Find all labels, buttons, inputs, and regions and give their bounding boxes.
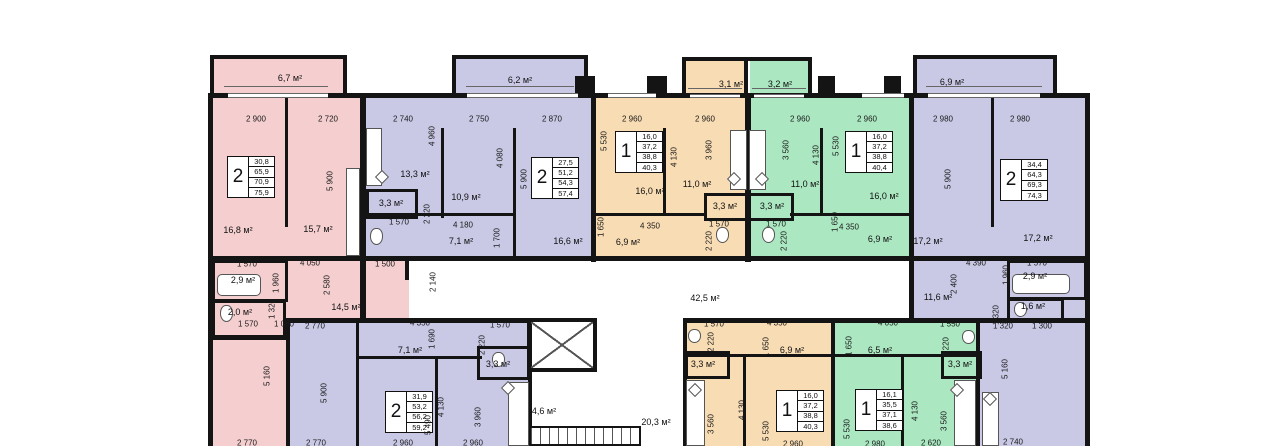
wall [682, 57, 748, 61]
dimension-label: 2 220 [942, 337, 951, 357]
apartment-area-values: 27,551,254,357,4 [553, 158, 578, 198]
dimension-label: 1 650 [845, 336, 854, 356]
room-area-label: 16,0 м² [635, 186, 664, 196]
wall [591, 97, 596, 262]
dimension-label: 5 490 [424, 415, 433, 435]
dimension-label: 5 900 [520, 169, 529, 189]
apartment-area-value: 37,1 [877, 411, 902, 421]
wall [356, 322, 359, 446]
wall [790, 213, 912, 216]
elevator-shaft [527, 318, 597, 372]
room-area-label: 16,0 м² [869, 191, 898, 201]
wall [884, 76, 901, 94]
wall [596, 213, 706, 216]
dimension-label: 3 560 [707, 414, 716, 434]
room-area-label: 6,9 м² [868, 234, 892, 244]
dimension-label: 2 220 [707, 332, 716, 352]
dimension-label: 5 530 [843, 419, 852, 439]
apartment-area-value: 75,9 [249, 188, 274, 197]
dimension-label: 1 500 [375, 260, 395, 269]
dimension-label: 1 080 [274, 320, 294, 329]
dimension-label: 5 900 [320, 383, 329, 403]
room-area-label: 7,1 м² [449, 236, 473, 246]
dimension-label: 2 960 [393, 439, 413, 446]
apartment-area-value: 69,3 [1022, 181, 1047, 191]
apartment-area-value: 16,1 [877, 390, 902, 400]
dimension-label: 2 220 [780, 231, 789, 251]
wall [513, 128, 516, 258]
dimension-label: 2 960 [463, 439, 483, 446]
dimension-label: 2 140 [429, 272, 438, 292]
dimension-label: 1 570 [237, 260, 257, 269]
apartment-area-value: 38,8 [867, 153, 892, 163]
dimension-label: 2 720 [318, 115, 338, 124]
window [228, 93, 328, 98]
wall [210, 55, 347, 59]
room-area-label: 4,6 м² [532, 406, 556, 416]
dimension-label: 2 770 [237, 439, 257, 446]
floor-plan: 230,865,970,975,9227,551,254,357,4116,03… [0, 0, 1280, 446]
apartment-area-value: 31,9 [407, 392, 432, 402]
room-area-label: 17,2 м² [913, 236, 942, 246]
dimension-label: 2 220 [478, 335, 487, 355]
dimension-label: 1 570 [766, 220, 786, 229]
room-fill [684, 60, 746, 96]
room-area-label: 6,9 м² [940, 77, 964, 87]
dimension-label: 1 570 [1027, 259, 1047, 268]
room-area-label: 17,2 м² [1023, 233, 1052, 243]
apartment-area-values: 16,037,238,840,4 [867, 132, 892, 172]
apartment-room-count: 2 [386, 392, 407, 432]
window [754, 94, 804, 98]
dimension-label: 5 530 [600, 131, 609, 151]
dimension-label: 4 130 [812, 145, 821, 165]
wall [831, 318, 835, 446]
apartment-room-count: 1 [777, 391, 798, 431]
wall [913, 55, 1057, 59]
room-area-label: 14,5 м² [331, 302, 360, 312]
dimension-label: 4 050 [300, 259, 320, 268]
apartment-room-count: 2 [1001, 160, 1022, 200]
room-area-label: 15,7 м² [303, 224, 332, 234]
room-area-label: 6,9 м² [780, 345, 804, 355]
dimension-label: 4 390 [966, 259, 986, 268]
room-area-label: 16,8 м² [223, 225, 252, 235]
toilet-fixture [962, 330, 975, 344]
dimension-label: 4 130 [911, 401, 920, 421]
toilet-fixture [762, 227, 775, 243]
dimension-label: 1 550 [940, 320, 960, 329]
apartment-area-value: 16,0 [637, 132, 662, 142]
window [532, 93, 578, 98]
room-area-label: 3,3 м² [379, 198, 403, 208]
dimension-label: 1 650 [762, 337, 771, 357]
apartment-area-value: 54,3 [553, 179, 578, 189]
wall [452, 55, 588, 59]
wall [647, 76, 667, 94]
apartment-area-values: 34,464,369,374,3 [1022, 160, 1047, 200]
apartment-area-values: 16,135,537,138,6 [877, 390, 902, 430]
dimension-label: 3 560 [782, 140, 791, 160]
apartment-area-value: 27,5 [553, 158, 578, 168]
apartment-area-value: 37,2 [637, 142, 662, 152]
dimension-label: 4 180 [453, 221, 473, 230]
apartment-area-value: 38,8 [637, 153, 662, 163]
apartment-area-value: 51,2 [553, 168, 578, 178]
apartment-area-value: 37,2 [798, 401, 823, 411]
room-area-label: 16,6 м² [553, 236, 582, 246]
room-area-label: 6,7 м² [278, 73, 302, 83]
apartment-stat-box: 234,464,369,374,3 [1000, 159, 1048, 201]
dimension-label: 1 570 [490, 321, 510, 330]
wall [748, 57, 812, 61]
room-area-label: 2,9 м² [231, 275, 255, 285]
room-area-label: 3,3 м² [691, 359, 715, 369]
dimension-label: 2 220 [705, 231, 714, 251]
apartment-area-value: 16,0 [867, 132, 892, 142]
dimension-label: 1 300 [1032, 322, 1052, 331]
dimension-label: 2 400 [950, 274, 959, 294]
wall [356, 356, 482, 359]
toilet-fixture [688, 329, 701, 343]
apartment-area-value: 35,5 [877, 400, 902, 410]
dimension-label: 2 870 [542, 115, 562, 124]
dimension-label: 1 570 [709, 220, 729, 229]
apartment-stat-box: 116,135,537,138,6 [855, 389, 903, 431]
dimension-label: 2 770 [305, 322, 325, 331]
dimension-label: 4 350 [839, 223, 859, 232]
dimension-label: 2 740 [393, 115, 413, 124]
dimension-label: 4 350 [410, 319, 430, 328]
room-area-label: 42,5 м² [690, 293, 719, 303]
dimension-label: 1 960 [272, 273, 281, 293]
dimension-label: 1 570 [389, 218, 409, 227]
apartment-area-value: 40,4 [867, 163, 892, 172]
toilet-fixture [370, 228, 383, 245]
room-area-label: 3,3 м² [948, 359, 972, 369]
dimension-label: 2 740 [1003, 438, 1023, 446]
dimension-label: 4 080 [496, 148, 505, 168]
dimension-label: 1 690 [428, 329, 437, 349]
wall [976, 318, 980, 446]
toilet-fixture [716, 227, 729, 243]
apartment-stat-box: 116,037,238,840,4 [845, 131, 893, 173]
room-area-label: 3,3 м² [713, 201, 737, 211]
wall [441, 128, 444, 218]
apartment-area-value: 37,2 [867, 142, 892, 152]
room-fill [213, 322, 288, 446]
apartment-room-count: 1 [846, 132, 867, 172]
apartment-room-count: 1 [856, 390, 877, 430]
room-area-label: 11,0 м² [683, 179, 712, 189]
wall [575, 76, 595, 94]
apartment-stat-box: 116,037,238,840,3 [776, 390, 824, 432]
dimension-label: 4 130 [738, 400, 747, 420]
room-area-label: 2,0 м² [228, 307, 252, 317]
dimension-label: 5 160 [1001, 359, 1010, 379]
dimension-label: 1 320 [993, 322, 1013, 331]
apartment-room-count: 2 [228, 157, 249, 197]
balcony-rail [466, 86, 574, 87]
apartment-area-value: 34,4 [1022, 160, 1047, 170]
window [690, 94, 740, 98]
dimension-label: 2 960 [857, 115, 877, 124]
window [608, 93, 656, 98]
room-area-label: 7,1 м² [398, 345, 422, 355]
room-area-label: 3,1 м² [719, 79, 743, 89]
room-area-label: 3,3 м² [760, 201, 784, 211]
apartment-area-value: 64,3 [1022, 170, 1047, 180]
dimension-label: 4 130 [437, 397, 446, 417]
apartment-room-count: 1 [616, 132, 637, 172]
wall [818, 76, 835, 94]
dimension-label: 2 770 [306, 439, 326, 446]
apartment-area-value: 65,9 [249, 167, 274, 177]
dimension-label: 1 320 [268, 299, 277, 319]
apartment-area-value: 70,9 [249, 178, 274, 188]
apartment-area-value: 40,3 [637, 163, 662, 172]
wall [913, 55, 917, 97]
staircase [529, 426, 641, 446]
apartment-area-value: 38,6 [877, 421, 902, 430]
dimension-label: 4 350 [767, 319, 787, 328]
room-area-label: 11,0 м² [791, 179, 820, 189]
apartment-stat-box: 230,865,970,975,9 [227, 156, 275, 198]
dimension-label: 1 700 [493, 228, 502, 248]
room-area-label: 1,6 м² [1021, 301, 1045, 311]
dimension-label: 1 960 [1002, 265, 1011, 285]
wall [909, 97, 914, 322]
dimension-label: 2 900 [246, 115, 266, 124]
room-area-label: 6,2 м² [508, 75, 532, 85]
room-area-label: 6,9 м² [616, 237, 640, 247]
room-area-label: 10,9 м² [451, 192, 480, 202]
wall [808, 57, 812, 97]
wall [682, 57, 686, 97]
room-area-label: 6,5 м² [868, 345, 892, 355]
wall [1053, 55, 1057, 97]
apartment-area-value: 16,0 [798, 391, 823, 401]
dimension-label: 2 750 [469, 115, 489, 124]
dimension-label: 2 980 [865, 440, 885, 446]
dimension-label: 5 900 [944, 169, 953, 189]
apartment-area-values: 16,037,238,840,3 [798, 391, 823, 431]
wall [452, 55, 456, 97]
room-area-label: 3,2 м² [768, 79, 792, 89]
wall [208, 256, 1087, 261]
wall [663, 128, 666, 216]
wall [744, 57, 748, 97]
room-area-label: 11,6 м² [924, 292, 953, 302]
dimension-label: 1 570 [704, 320, 724, 329]
dimension-label: 4 350 [640, 222, 660, 231]
apartment-stat-box: 116,037,238,840,3 [615, 131, 663, 173]
apartment-area-value: 74,3 [1022, 191, 1047, 200]
dimension-label: 3 960 [474, 407, 483, 427]
room-area-label: 20,3 м² [641, 417, 670, 427]
dimension-label: 3 560 [940, 411, 949, 431]
dimension-label: 4 960 [428, 126, 437, 146]
window [928, 93, 1040, 98]
apartment-area-value: 38,8 [798, 412, 823, 422]
dimension-label: 2 960 [790, 115, 810, 124]
dimension-label: 5 530 [762, 421, 771, 441]
wall [343, 55, 347, 97]
apartment-area-value: 40,3 [798, 422, 823, 431]
dimension-label: 2 960 [783, 440, 803, 446]
apartment-stat-box: 227,551,254,357,4 [531, 157, 579, 199]
balcony-rail [224, 86, 328, 87]
dimension-label: 5 530 [832, 136, 841, 156]
apartment-area-value: 30,8 [249, 157, 274, 167]
wall [991, 97, 994, 227]
room-area-label: 2,9 м² [1023, 271, 1047, 281]
dimension-label: 2 960 [622, 115, 642, 124]
room-fill [750, 60, 810, 96]
dimension-label: 5 900 [326, 171, 335, 191]
apartment-area-value: 53,2 [407, 402, 432, 412]
wall [820, 128, 823, 216]
apartment-area-value: 57,4 [553, 189, 578, 198]
dimension-label: 1 570 [238, 320, 258, 329]
apartment-room-count: 2 [532, 158, 553, 198]
window [862, 93, 904, 98]
wall [285, 97, 288, 227]
dimension-label: 3 960 [705, 140, 714, 160]
wall [405, 256, 409, 280]
dimension-label: 2 580 [323, 275, 332, 295]
dimension-label: 2 960 [695, 115, 715, 124]
room-area-label: 3,3 м² [486, 359, 510, 369]
wall [210, 55, 214, 97]
apartment-area-values: 30,865,970,975,9 [249, 157, 274, 197]
dimension-label: 2 220 [423, 204, 432, 224]
apartment-area-values: 16,037,238,840,3 [637, 132, 662, 172]
dimension-label: 1 650 [597, 217, 606, 237]
dimension-label: 5 160 [263, 366, 272, 386]
dimension-label: 4 050 [878, 319, 898, 328]
dimension-label: 4 130 [670, 147, 679, 167]
dimension-label: 2 980 [933, 115, 953, 124]
dimension-label: 2 980 [1010, 115, 1030, 124]
room-area-label: 13,3 м² [400, 169, 429, 179]
dimension-label: 2 620 [921, 439, 941, 446]
room-fill [915, 58, 1055, 97]
kitchen-counter-fixture [346, 168, 360, 256]
